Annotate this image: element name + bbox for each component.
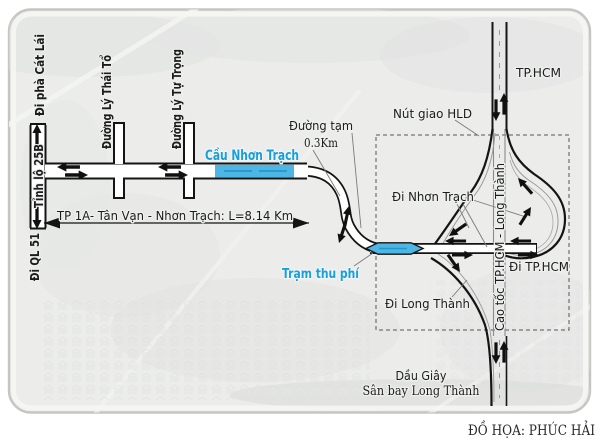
label-duong-tam-length: 0.3Km [304,135,338,150]
label-di-tphcm: Đi TP.HCM [509,259,569,274]
bridge-nhon-trach [215,165,294,178]
label-tphcm-north: TP.HCM [515,65,561,80]
label-tinh-lo-25b: Tỉnh lộ 25B [32,144,46,208]
label-nut-giao-hld: Nút giao HLD [393,106,472,121]
label-san-bay-long-thanh: Sân bay Long Thành [363,384,481,399]
credit-text: ĐỒ HỌA: PHÚC HẢI [468,421,595,439]
label-cau-nhon-trach: Cầu Nhơn Trạch [205,147,299,164]
label-duong-ly-tu-trong: Đường Lý Tự Trọng [170,49,184,149]
label-tram-thu-phi: Trạm thu phí [282,266,360,282]
map-graphic: Đi phà Cát Lái Tỉnh lộ 25B Đi QL 51 Đườn… [0,0,600,441]
label-cao-toc-expressway: Cao tốc TP.HCM - Long Thành [493,163,507,331]
label-dau-giay: Dầu Giây [396,368,448,383]
label-di-ql51: Đi QL 51 [28,233,42,281]
label-di-pha-cat-lai: Đi phà Cát Lái [32,34,47,116]
label-di-nhon-trach: Đi Nhơn Trạch [392,189,474,204]
label-duong-ly-thai-to: Đường Lý Thái Tổ [99,54,114,149]
label-duong-tam: Đường tạm [289,118,353,133]
label-route-dimension: TP 1A- Tân Vạn - Nhơn Trạch: L=8.14 Km [56,209,293,223]
toll-station-shape [366,243,423,254]
label-di-long-thanh: Đi Long Thành [385,296,470,311]
